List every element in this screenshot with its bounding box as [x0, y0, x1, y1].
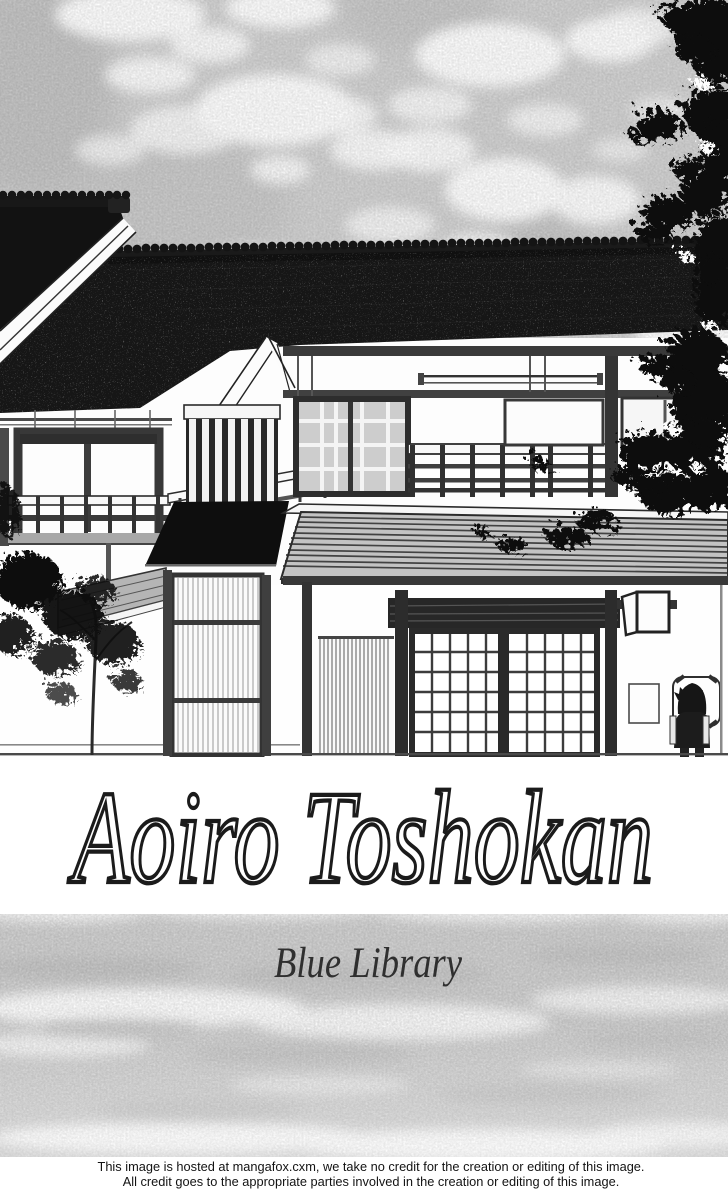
svg-text:Aoiro Toshokan: Aoiro Toshokan	[68, 764, 653, 911]
svg-text:Blue Library: Blue Library	[274, 939, 462, 987]
